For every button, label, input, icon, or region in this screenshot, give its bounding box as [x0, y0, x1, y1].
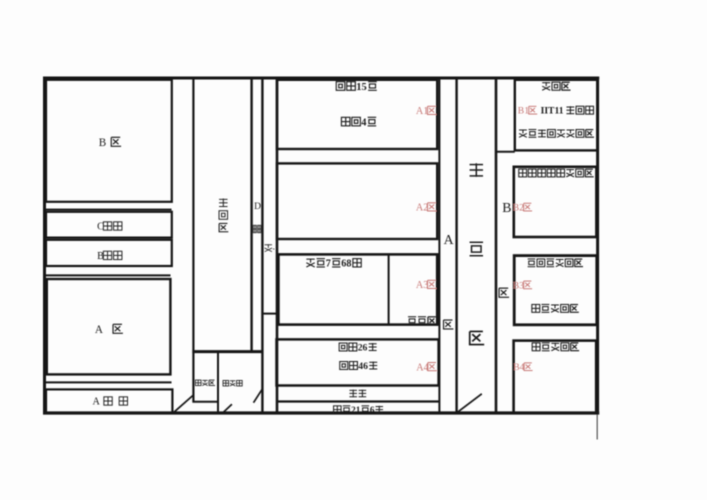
svg-text:6: 6	[370, 405, 375, 415]
svg-text:A: A	[95, 324, 103, 336]
svg-text:B: B	[502, 200, 511, 215]
svg-text:B2: B2	[513, 203, 524, 214]
svg-text:A: A	[93, 397, 101, 408]
svg-text:A4: A4	[416, 362, 428, 373]
svg-text:B1: B1	[518, 106, 529, 117]
svg-text:15: 15	[356, 82, 367, 93]
svg-text:21: 21	[351, 405, 361, 415]
svg-text:A1: A1	[416, 106, 428, 117]
svg-text:B3: B3	[513, 280, 524, 291]
svg-text:7: 7	[326, 259, 331, 270]
svg-text:4: 4	[361, 117, 366, 128]
svg-text:D: D	[254, 202, 261, 212]
svg-text:A: A	[444, 232, 454, 247]
svg-text:B: B	[99, 137, 106, 149]
svg-text:A3: A3	[416, 280, 428, 291]
svg-text:B4: B4	[513, 362, 524, 373]
svg-text:26: 26	[358, 343, 368, 354]
svg-text:IIT11: IIT11	[541, 106, 564, 117]
svg-text:68: 68	[341, 259, 351, 270]
svg-text:A2: A2	[416, 203, 428, 214]
svg-text:46: 46	[358, 361, 368, 372]
